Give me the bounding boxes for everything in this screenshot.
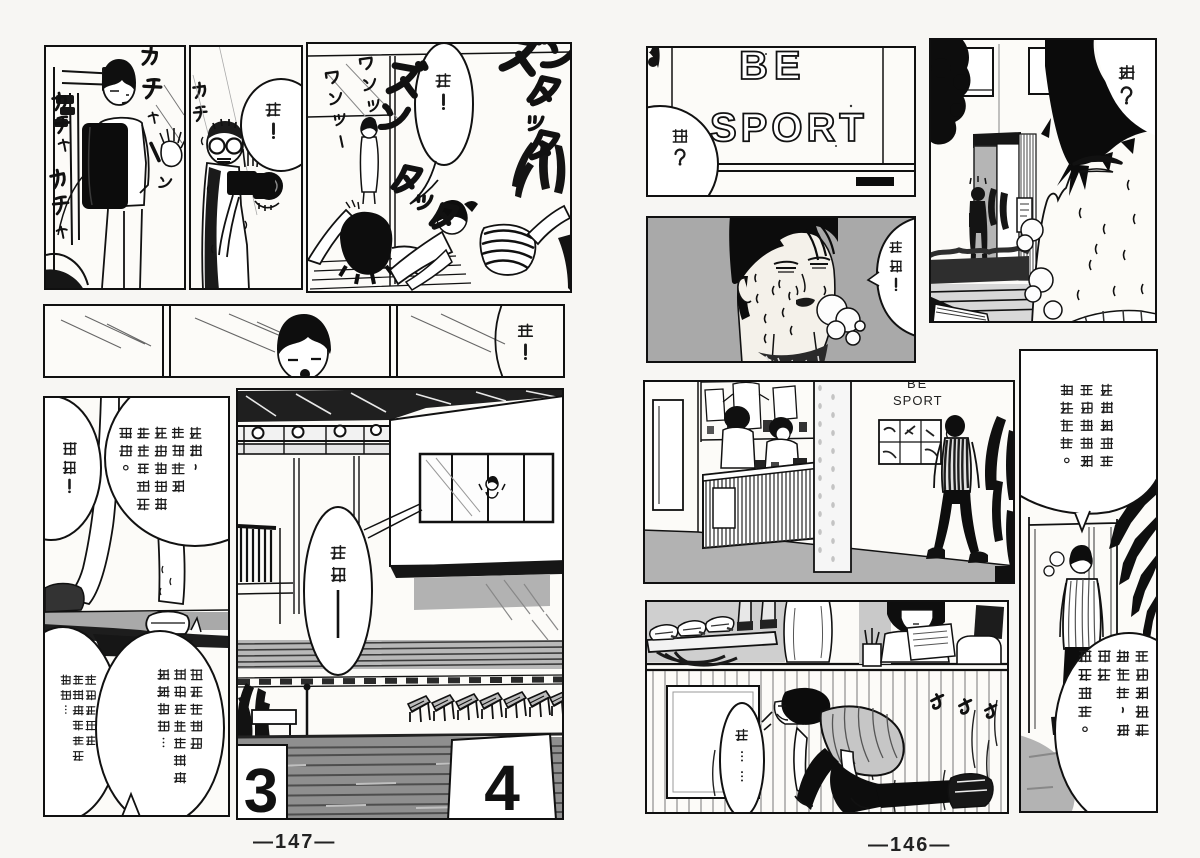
svg-text:3: 3 [244, 757, 278, 820]
svg-text:SPORT: SPORT [710, 106, 868, 150]
svg-text:BE: BE [907, 380, 928, 391]
svg-text:4: 4 [484, 752, 520, 820]
svg-text:BE: BE [739, 46, 807, 88]
svg-text:SPORT: SPORT [893, 393, 943, 408]
